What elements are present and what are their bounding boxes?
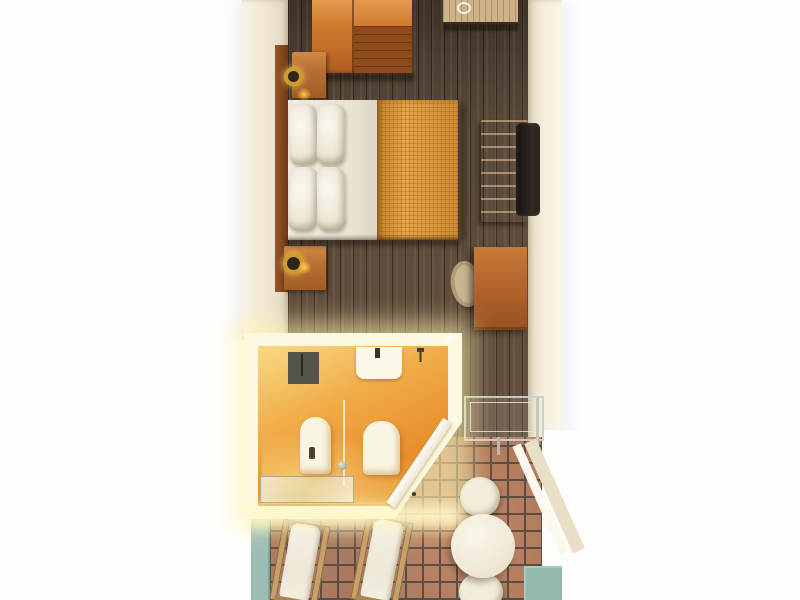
shower-head-icon <box>301 354 303 376</box>
bed-foot-shadow <box>286 238 460 246</box>
faucet-icon <box>375 348 380 358</box>
bidet-fixture-icon <box>309 447 315 459</box>
ring-lamp-icon-top <box>284 67 303 86</box>
door-handle-icon <box>457 2 471 14</box>
glass-shelf-inner-edge <box>470 402 534 432</box>
light-sparkle <box>444 332 456 344</box>
shower-area <box>288 352 319 384</box>
double-bed <box>288 100 458 240</box>
patio-chair-top <box>460 477 500 517</box>
toilet <box>363 421 400 475</box>
shower-glass-divider <box>343 400 345 486</box>
glass-shelf-leg <box>497 437 500 455</box>
lamp-glow-top <box>296 88 312 101</box>
pillow <box>316 167 345 231</box>
pillow <box>288 167 318 232</box>
terrace-edge-bottom-right <box>524 566 562 600</box>
pillow <box>288 104 318 166</box>
shower-glass-screen <box>260 476 354 503</box>
entry-door <box>443 0 518 25</box>
lamp-glow-bottom <box>297 261 312 274</box>
wardrobe-inner-panel <box>354 26 412 73</box>
floorplan-render <box>0 0 800 600</box>
wardrobe-shadow <box>312 73 414 81</box>
bathroom-door-knob-icon <box>412 492 416 496</box>
pillow <box>316 104 345 165</box>
desk <box>474 247 527 330</box>
tv <box>516 123 540 216</box>
bed-side-shadow <box>458 104 466 240</box>
bidet <box>300 417 331 474</box>
wardrobe-door-seam <box>352 0 354 73</box>
bathroom-under-glow <box>246 505 462 527</box>
shower-knob-icon <box>338 461 347 470</box>
door-shadow <box>443 24 518 31</box>
bed-spread <box>377 100 458 240</box>
